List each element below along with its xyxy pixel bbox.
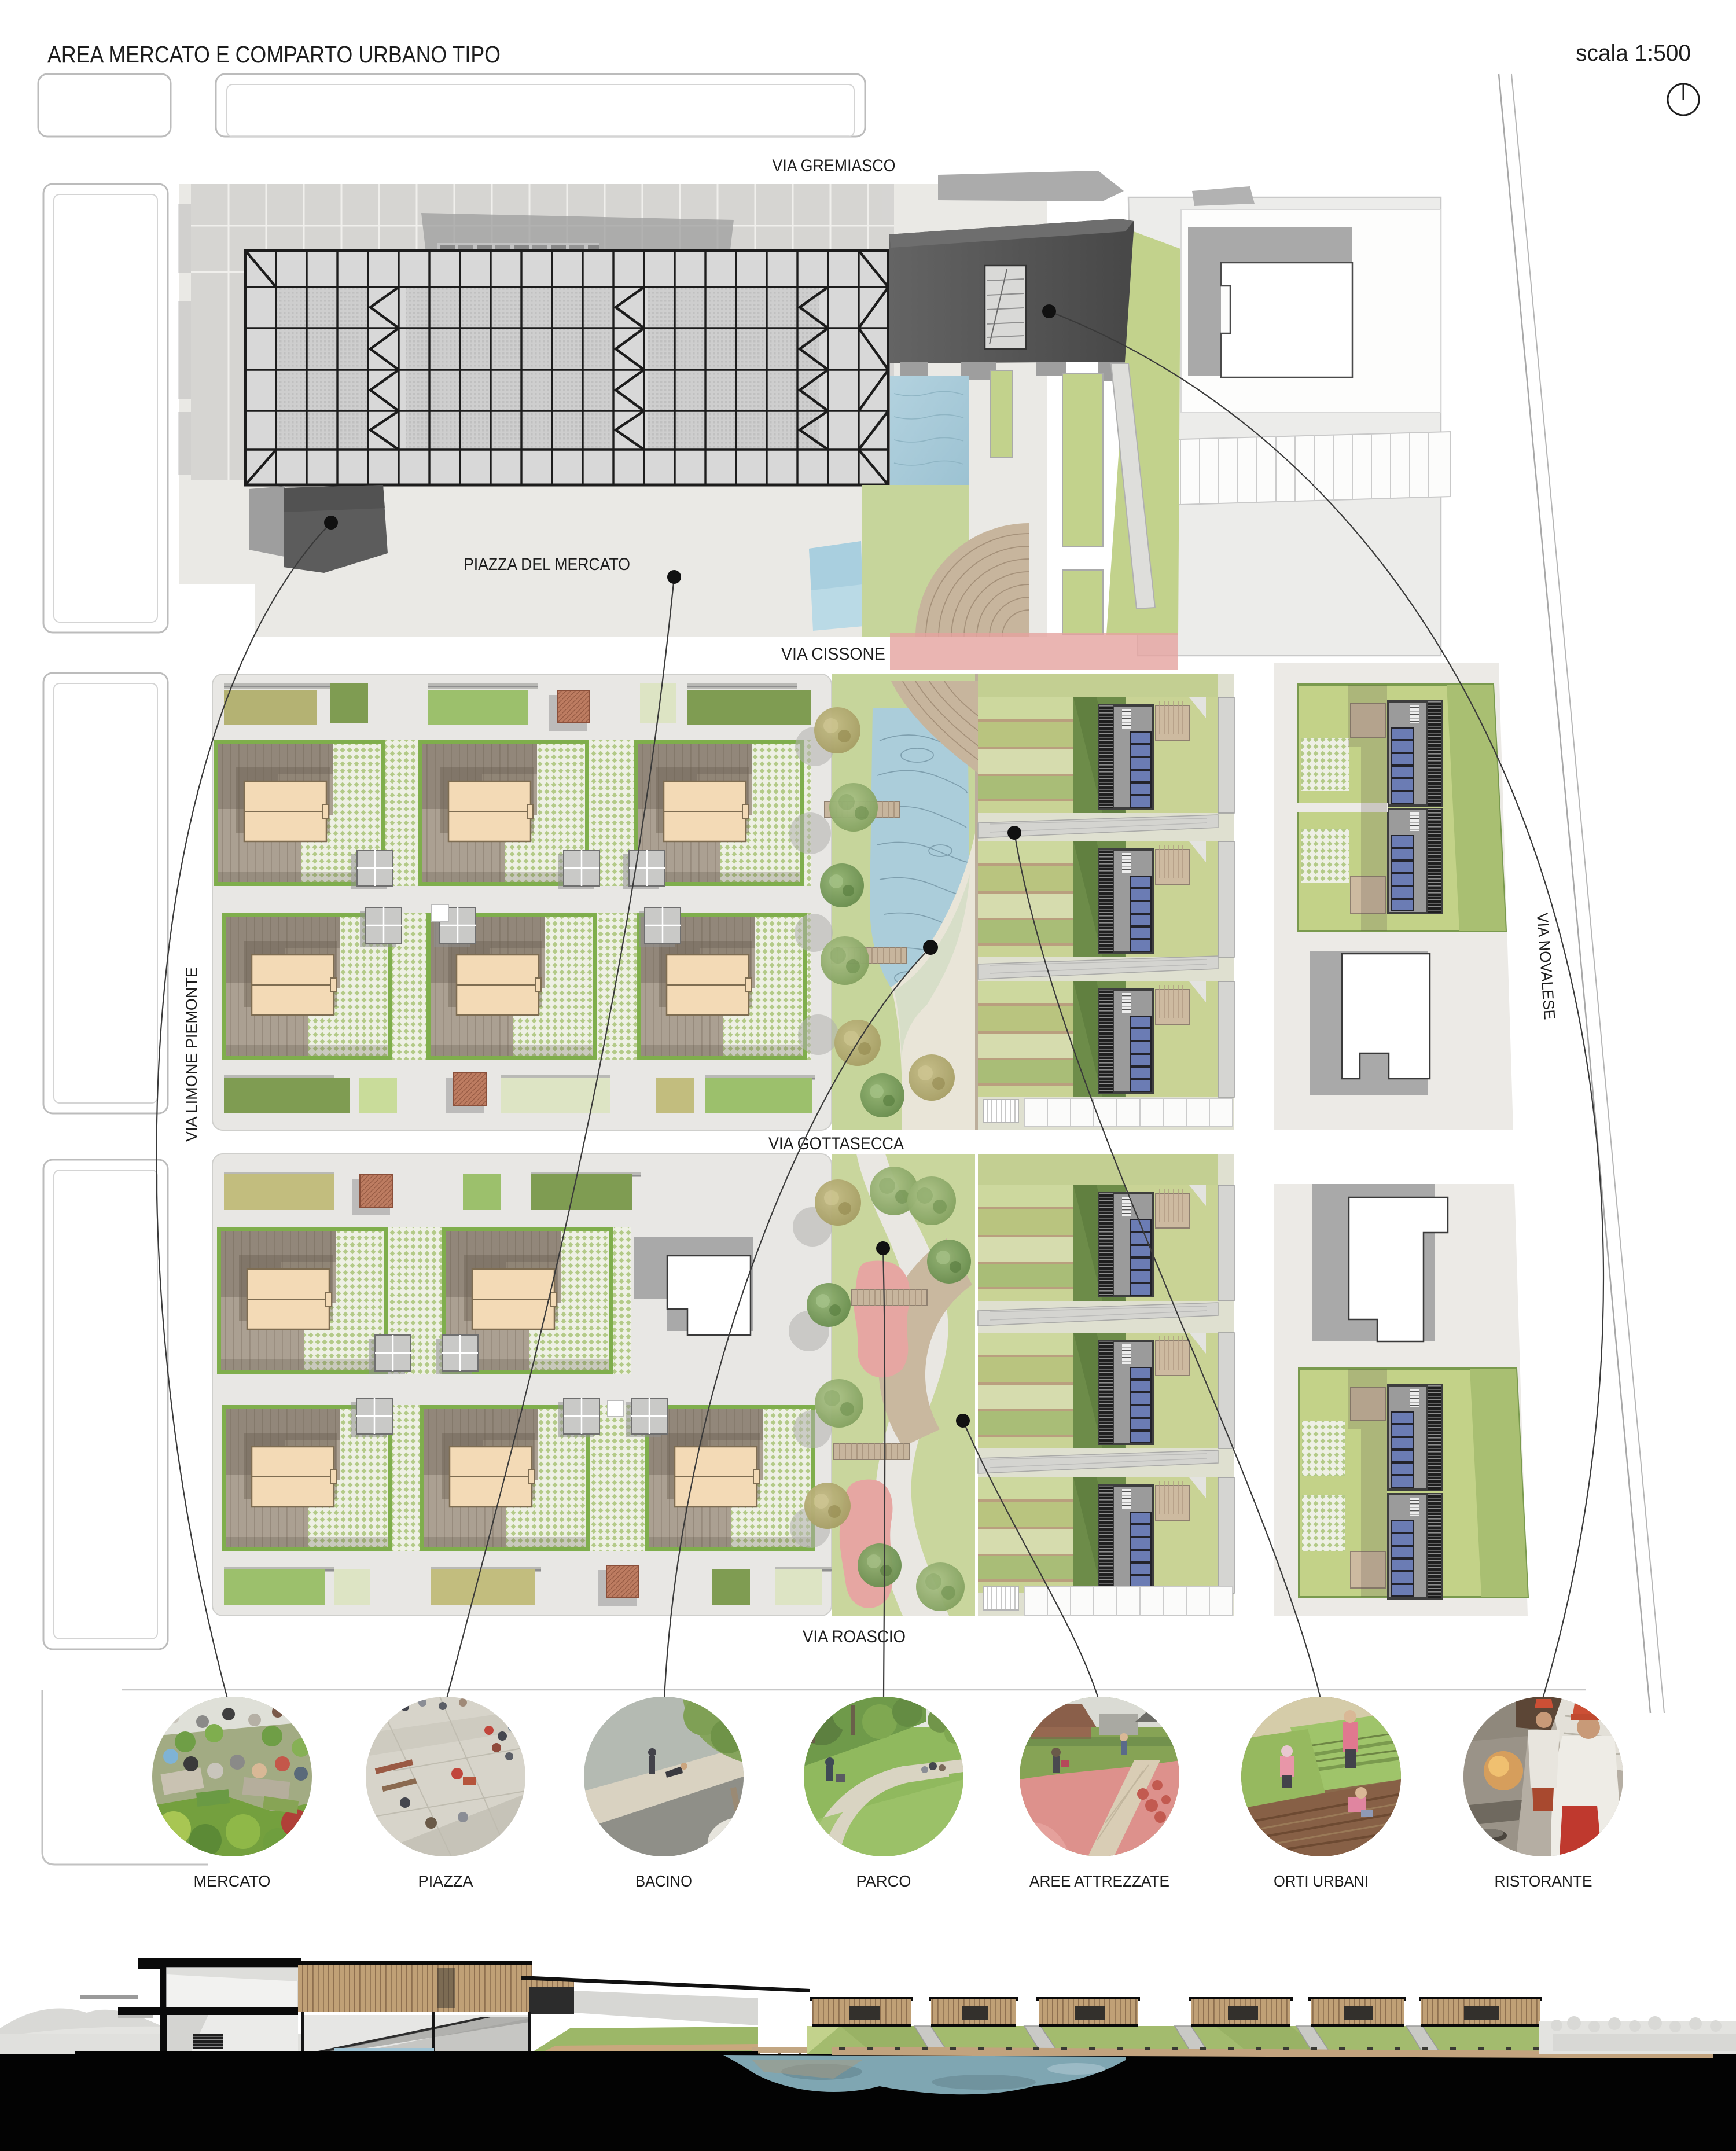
svg-text:BACINO: BACINO <box>635 1872 692 1890</box>
svg-text:MERCATO: MERCATO <box>194 1872 271 1890</box>
svg-text:RISTORANTE: RISTORANTE <box>1495 1872 1592 1890</box>
svg-text:PARCO: PARCO <box>856 1872 911 1890</box>
svg-text:VIA ROASCIO: VIA ROASCIO <box>803 1627 906 1646</box>
svg-text:ORTI URBANI: ORTI URBANI <box>1274 1872 1369 1890</box>
svg-text:scala 1:500: scala 1:500 <box>1576 41 1691 66</box>
svg-text:VIA CISSONE: VIA CISSONE <box>781 645 885 664</box>
svg-text:VIA GREMIASCO: VIA GREMIASCO <box>773 156 896 175</box>
svg-text:AREA MERCATO E COMPARTO URBANO: AREA MERCATO E COMPARTO URBANO TIPO <box>47 41 501 68</box>
svg-text:VIA LIMONE PIEMONTE: VIA LIMONE PIEMONTE <box>183 967 200 1142</box>
svg-text:AREE ATTREZZATE: AREE ATTREZZATE <box>1029 1872 1169 1890</box>
svg-text:PIAZZA: PIAZZA <box>418 1872 473 1890</box>
svg-text:PIAZZA DEL MERCATO: PIAZZA DEL MERCATO <box>464 555 630 574</box>
svg-text:VIA GOTTASECCA: VIA GOTTASECCA <box>768 1134 904 1153</box>
